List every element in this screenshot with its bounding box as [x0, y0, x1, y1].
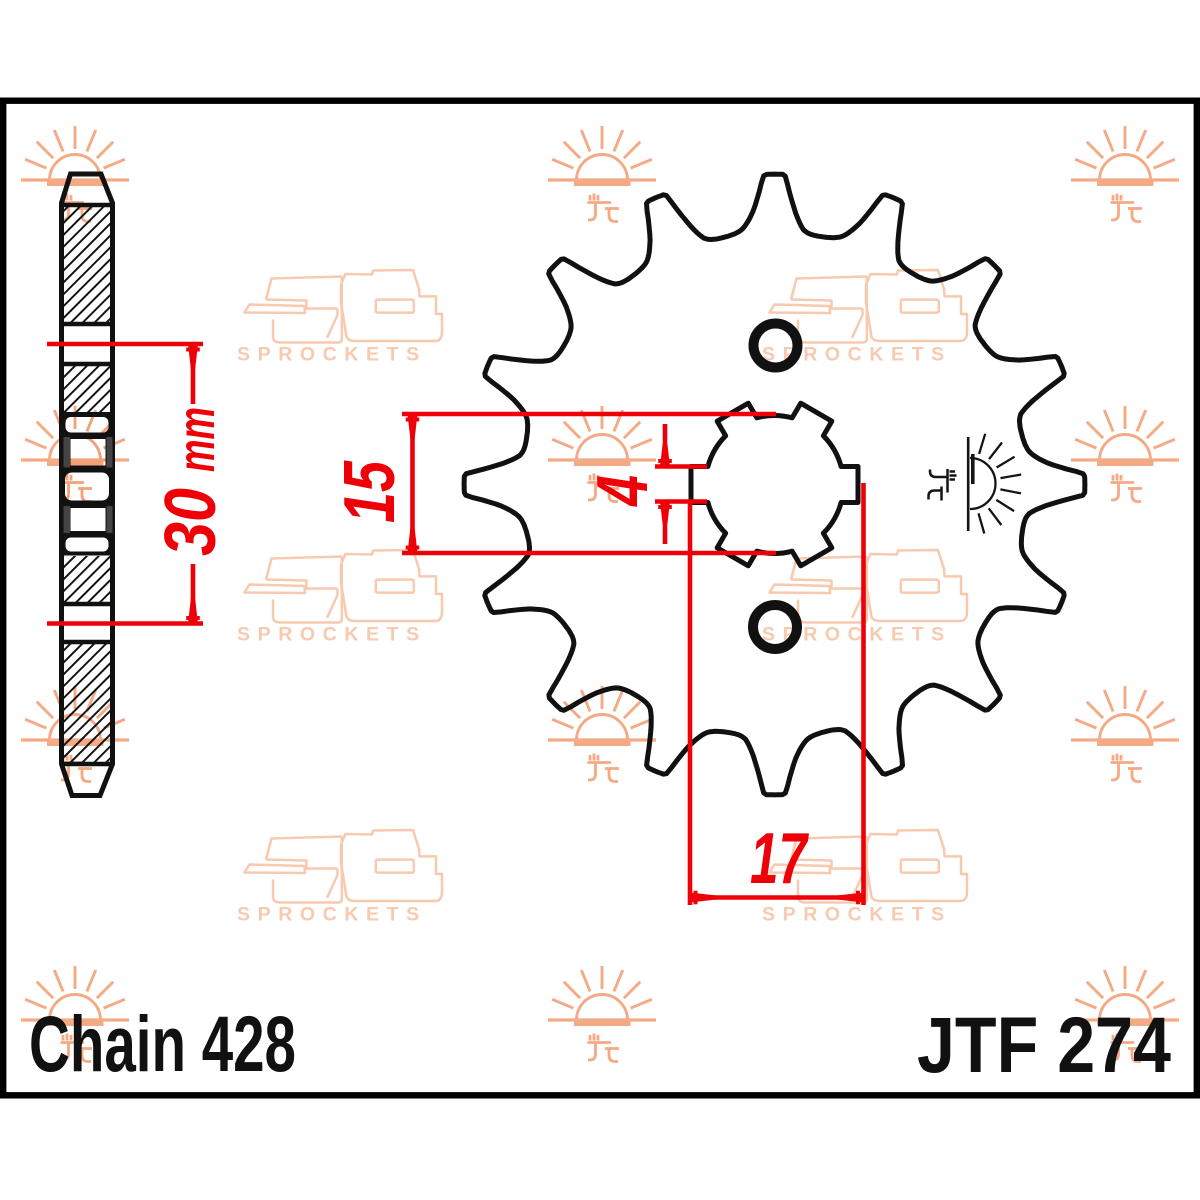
svg-text:mm: mm [168, 407, 226, 472]
svg-text:4: 4 [582, 475, 663, 508]
svg-text:30: 30 [150, 488, 231, 556]
svg-text:15: 15 [329, 460, 410, 523]
svg-text:SPROCKETS: SPROCKETS [762, 904, 952, 926]
svg-text:JTF 274: JTF 274 [917, 1000, 1171, 1089]
svg-text:17: 17 [750, 818, 810, 899]
svg-text:SPROCKETS: SPROCKETS [237, 344, 427, 366]
svg-text:SPROCKETS: SPROCKETS [237, 904, 427, 926]
svg-text:SPROCKETS: SPROCKETS [237, 624, 427, 646]
svg-text:Chain 428: Chain 428 [29, 999, 296, 1088]
